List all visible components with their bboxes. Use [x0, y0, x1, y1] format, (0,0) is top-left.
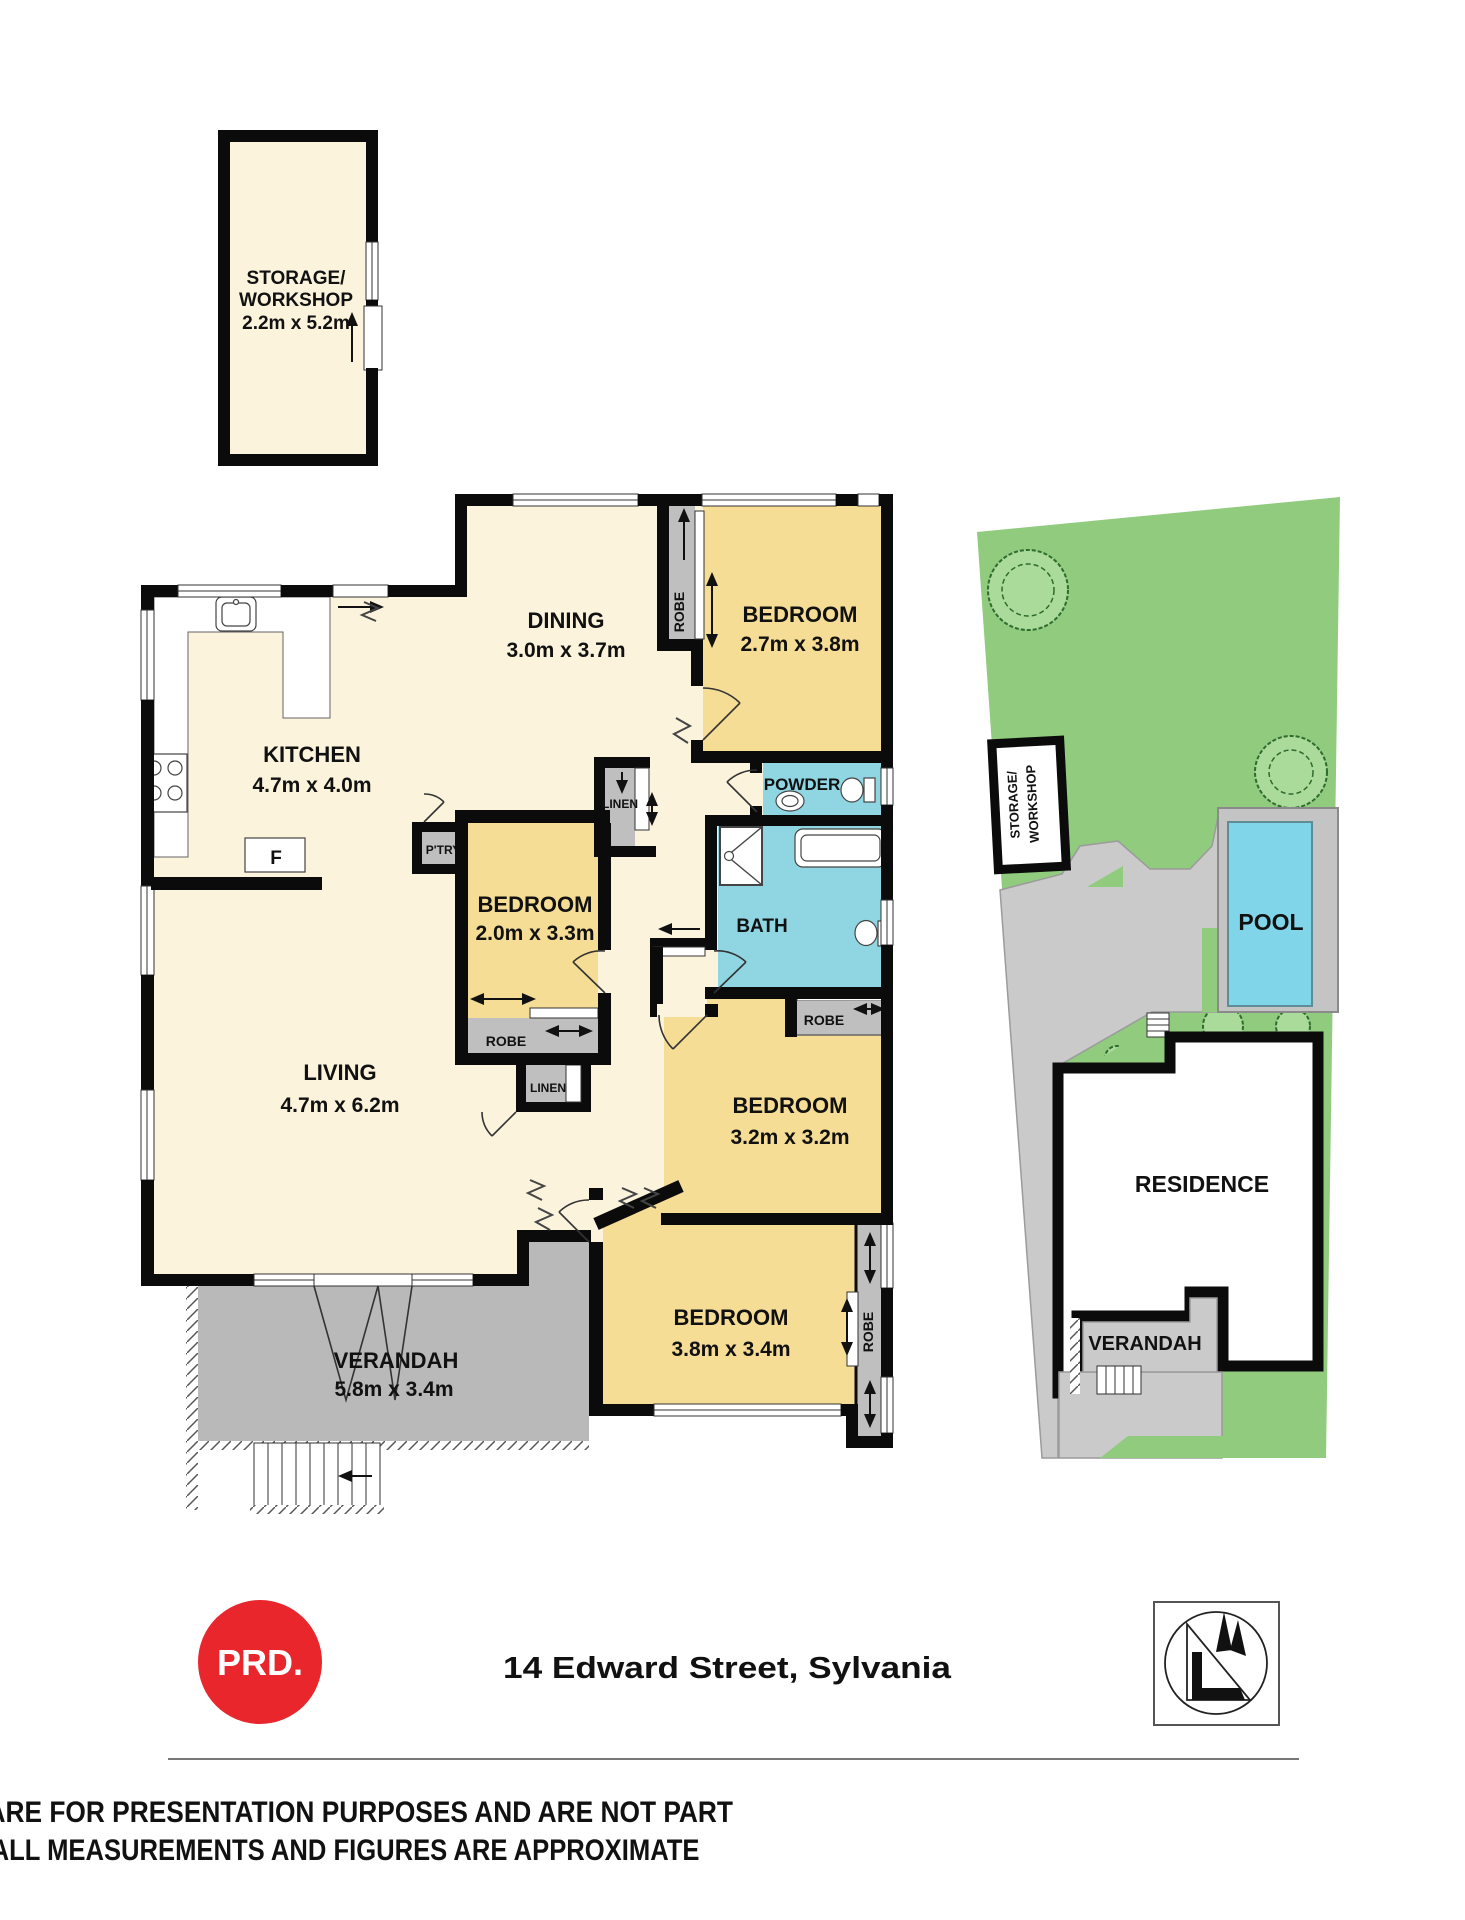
living-dims: 4.7m x 6.2m	[280, 1094, 399, 1117]
residence-label: RESIDENCE	[1135, 1171, 1269, 1197]
storage-workshop-building: STORAGE/ WORKSHOP 2.2m x 5.2m	[218, 130, 382, 466]
living-label: LIVING	[303, 1060, 376, 1085]
dining-dims: 3.0m x 3.7m	[506, 639, 625, 662]
robe32-label: ROBE	[804, 1012, 844, 1028]
site-plan: POOL RESIDENCE VERANDAH	[977, 497, 1340, 1458]
site-verandah-steps	[1097, 1366, 1141, 1394]
linen2-label: LINEN	[530, 1081, 566, 1095]
floorplan-canvas: STORAGE/ WORKSHOP 2.2m x 5.2m	[0, 0, 1465, 1920]
disclaimer-line-2: OF ANY LEGAL DOCUMENT. ALL MEASUREMENTS …	[0, 1834, 700, 1867]
pool-label: POOL	[1238, 909, 1303, 935]
verandah-stairs	[254, 1443, 380, 1507]
verandah-dims: 5.8m x 3.4m	[334, 1378, 453, 1401]
address-title: 14 Edward Street, Sylvania	[503, 1650, 952, 1685]
storage-dims: 2.2m x 5.2m	[242, 313, 350, 334]
storage-label-2: WORKSHOP	[239, 290, 353, 311]
linen1-label: LINEN	[602, 797, 638, 811]
fridge-label: F	[270, 848, 282, 869]
bed27-dims: 2.7m x 3.8m	[740, 633, 859, 656]
lawn-strip	[1202, 928, 1218, 1012]
bathtub-icon	[795, 829, 886, 867]
bed38-label: BEDROOM	[674, 1305, 789, 1330]
bath-label: BATH	[736, 916, 787, 937]
disclaimer-line-1: DISCLAIMER: PLANS SHOWN ARE FOR PRESENTA…	[0, 1796, 733, 1829]
verandah-label: VERANDAH	[334, 1348, 459, 1373]
floorplan-page: STORAGE/ WORKSHOP 2.2m x 5.2m	[0, 0, 1465, 1920]
prd-logo: PRD.	[198, 1600, 322, 1724]
powder-label: POWDER	[764, 775, 841, 794]
footer: PRD. 14 Edward Street, Sylvania DISCLAIM…	[0, 1600, 1299, 1867]
kitchen-dims: 4.7m x 4.0m	[252, 774, 371, 797]
robe1-label: ROBE	[671, 592, 687, 632]
bed20-dims: 2.0m x 3.3m	[475, 922, 594, 945]
site-verandah-label: VERANDAH	[1088, 1333, 1201, 1355]
storage-label-1: STORAGE/	[247, 268, 347, 289]
toilet-powder-icon	[841, 778, 875, 802]
prd-logo-text: PRD.	[217, 1642, 303, 1683]
north-compass-logo	[1154, 1602, 1279, 1725]
bed27-label: BEDROOM	[743, 602, 858, 627]
bed38-dims: 3.8m x 3.4m	[671, 1338, 790, 1361]
powder-sink-icon	[776, 791, 804, 811]
main-floor-plan: F ROBE LINEN	[141, 494, 893, 1514]
kitchen-sink-icon	[216, 597, 256, 631]
pool-area: POOL	[1218, 808, 1338, 1012]
dining-label: DINING	[528, 608, 605, 633]
bed20-label: BEDROOM	[478, 892, 593, 917]
site-storage-box: STORAGE/ WORKSHOP	[992, 740, 1067, 869]
bed32-label: BEDROOM	[733, 1093, 848, 1118]
robe20-label: ROBE	[486, 1033, 526, 1049]
bed32-dims: 3.2m x 3.2m	[730, 1126, 849, 1149]
shower-icon	[720, 827, 762, 885]
kitchen-label: KITCHEN	[263, 742, 361, 767]
fridge-icon: F	[245, 838, 305, 872]
robe38-label: ROBE	[860, 1312, 876, 1352]
